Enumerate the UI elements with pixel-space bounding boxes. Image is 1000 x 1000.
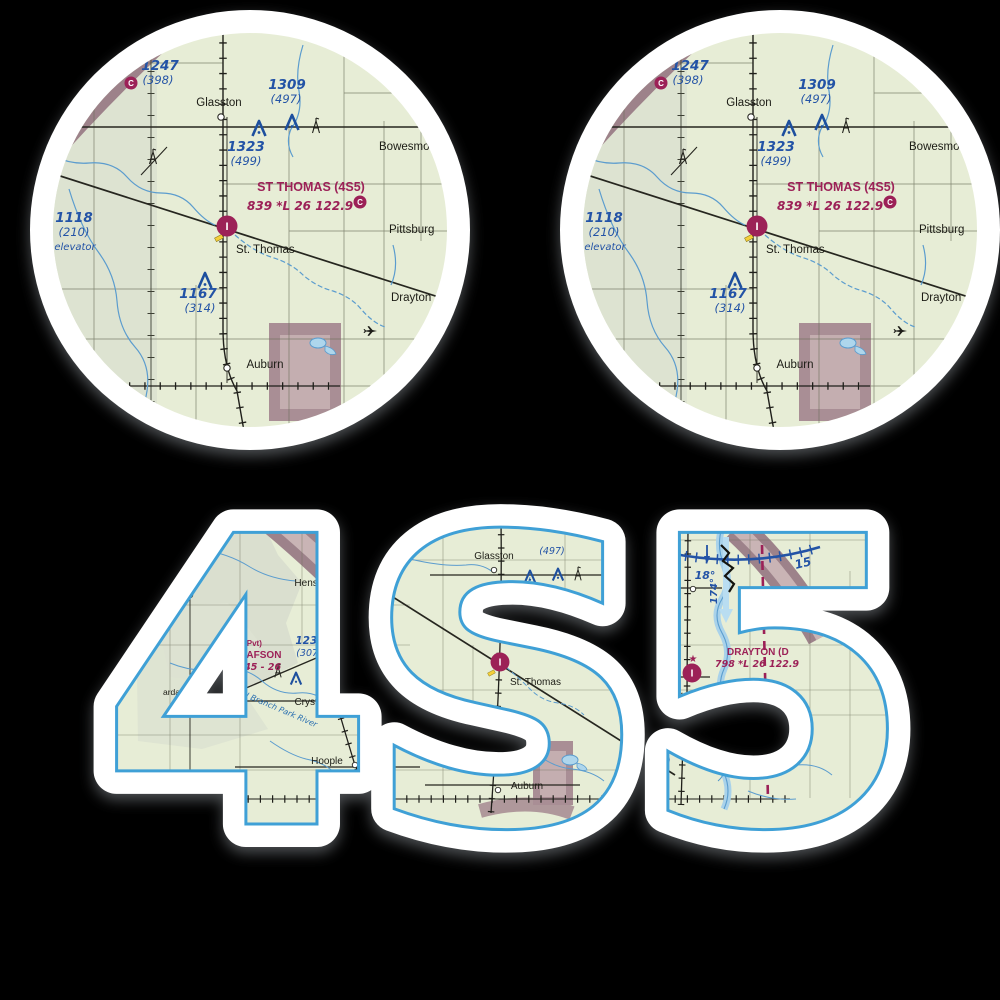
sticker-sheet-canvas: 4S5 I C <box>0 0 1000 1000</box>
sticker-4s5-outline: 4S5 <box>99 454 902 919</box>
sticker-sheet: 4S5 I C <box>0 0 1000 1000</box>
circle-sticker-1 <box>25 3 470 471</box>
text-sticker-4s5: 4S5 4S5 <box>90 454 920 919</box>
circle-sticker-2 <box>555 3 1000 471</box>
